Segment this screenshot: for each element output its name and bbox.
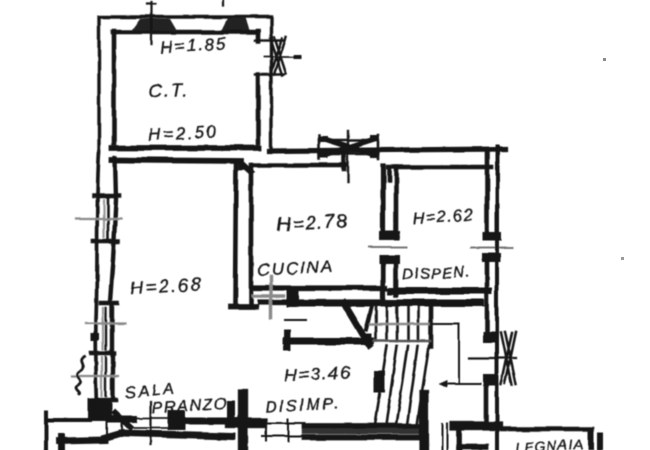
svg-text:LEGNAIA: LEGNAIA (515, 436, 585, 450)
svg-text:H=2.62: H=2.62 (412, 206, 475, 228)
svg-text:DISPEN.: DISPEN. (402, 264, 472, 283)
svg-text:H=2.78: H=2.78 (277, 211, 349, 236)
svg-text:H=2.68: H=2.68 (129, 274, 203, 299)
svg-text:H=1.85: H=1.85 (160, 34, 228, 58)
svg-text:C.T.: C.T. (149, 81, 189, 101)
svg-text:H=3.46: H=3.46 (284, 362, 353, 386)
svg-text:H=2.50: H=2.50 (148, 122, 219, 145)
svg-text:CUCINA: CUCINA (257, 257, 335, 280)
svg-text:DISIMP.: DISIMP. (265, 395, 341, 416)
